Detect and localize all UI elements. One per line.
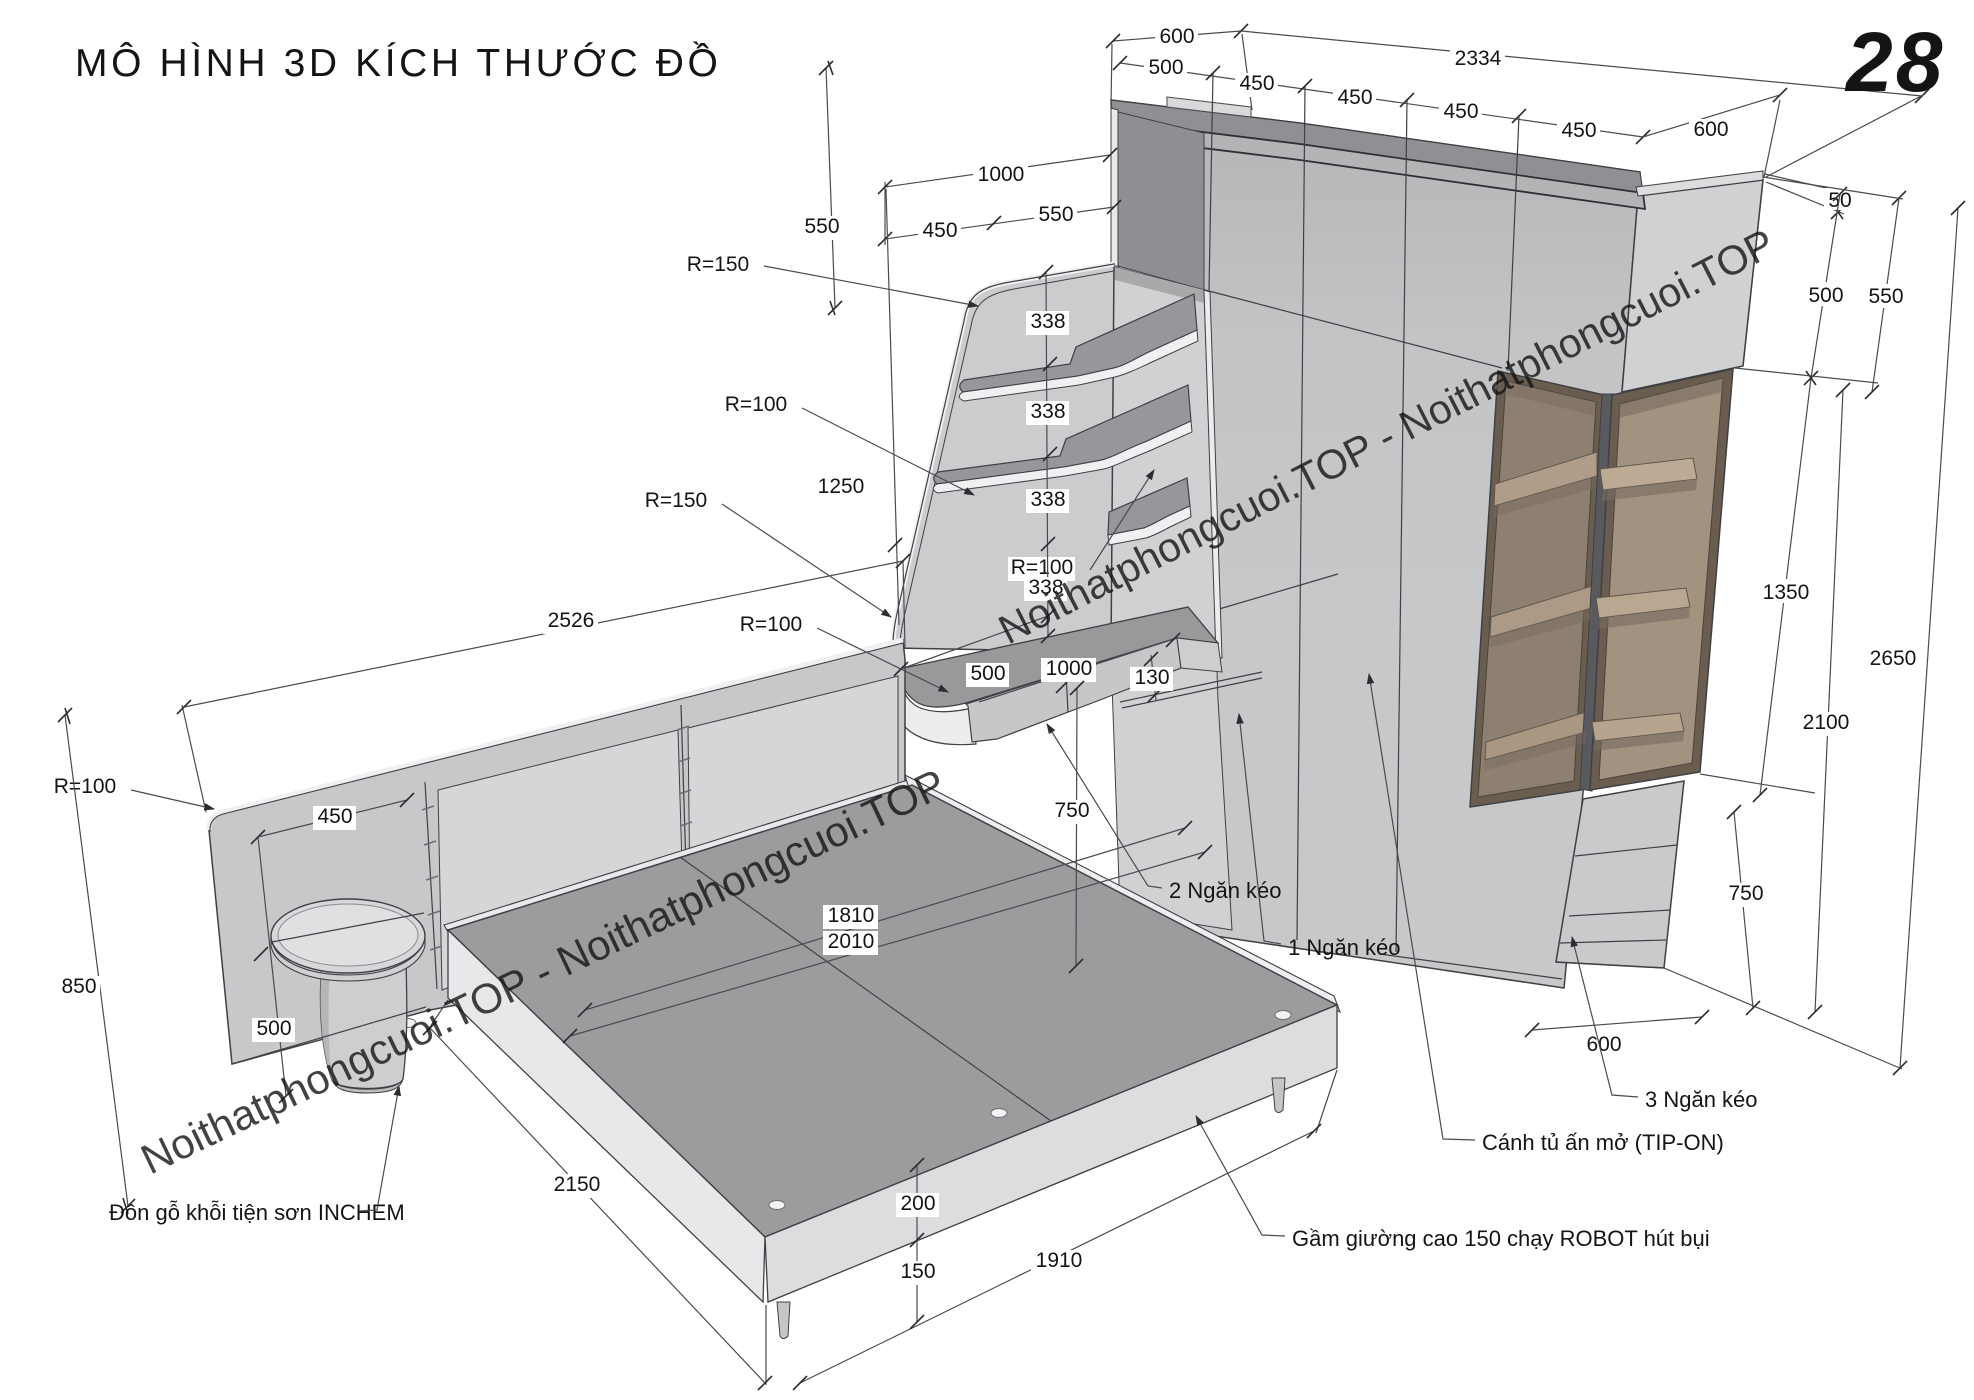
svg-text:550: 550 (804, 215, 839, 238)
svg-text:850: 850 (61, 975, 96, 998)
svg-text:1 Ngăn kéo: 1 Ngăn kéo (1288, 935, 1401, 960)
svg-text:1000: 1000 (1046, 657, 1093, 680)
svg-text:2150: 2150 (554, 1173, 601, 1196)
svg-text:1910: 1910 (1036, 1249, 1083, 1272)
svg-text:2010: 2010 (828, 930, 875, 953)
svg-text:750: 750 (1054, 799, 1089, 822)
svg-text:600: 600 (1159, 25, 1194, 48)
svg-text:550: 550 (1868, 285, 1903, 308)
svg-text:338: 338 (1030, 310, 1065, 333)
svg-text:500: 500 (1148, 56, 1183, 79)
svg-text:Gầm giường cao 150 chạy ROBOT: Gầm giường cao 150 chạy ROBOT hút bụi (1292, 1226, 1710, 1251)
svg-text:3 Ngăn kéo: 3 Ngăn kéo (1645, 1087, 1758, 1112)
svg-text:130: 130 (1134, 666, 1169, 689)
svg-text:500: 500 (256, 1017, 291, 1040)
svg-text:750: 750 (1728, 882, 1763, 905)
svg-text:50: 50 (1828, 189, 1851, 212)
svg-text:450: 450 (1443, 100, 1478, 123)
svg-text:500: 500 (1808, 284, 1843, 307)
svg-text:150: 150 (900, 1260, 935, 1283)
svg-text:500: 500 (970, 662, 1005, 685)
svg-text:1810: 1810 (828, 904, 875, 927)
svg-text:450: 450 (1561, 119, 1596, 142)
svg-text:2100: 2100 (1803, 711, 1850, 734)
svg-text:1350: 1350 (1763, 581, 1810, 604)
svg-text:R=100: R=100 (740, 613, 802, 636)
svg-text:1250: 1250 (818, 475, 865, 498)
svg-text:R=100: R=100 (725, 393, 787, 416)
svg-text:MÔ HÌNH 3D KÍCH THƯỚC ĐỒ: MÔ HÌNH 3D KÍCH THƯỚC ĐỒ (75, 41, 721, 85)
svg-text:2 Ngăn kéo: 2 Ngăn kéo (1169, 878, 1282, 903)
svg-text:2334: 2334 (1455, 47, 1502, 70)
svg-text:338: 338 (1030, 488, 1065, 511)
svg-text:450: 450 (1337, 86, 1372, 109)
svg-text:Đôn gỗ khỗi tiện sơn INCHEM: Đôn gỗ khỗi tiện sơn INCHEM (109, 1200, 405, 1225)
svg-text:2650: 2650 (1870, 647, 1917, 670)
svg-text:450: 450 (317, 805, 352, 828)
svg-text:600: 600 (1586, 1033, 1621, 1056)
svg-text:R=150: R=150 (687, 253, 749, 276)
svg-text:200: 200 (900, 1192, 935, 1215)
svg-text:600: 600 (1693, 118, 1728, 141)
svg-text:450: 450 (1239, 72, 1274, 95)
svg-text:28: 28 (1844, 15, 1945, 109)
svg-text:1000: 1000 (978, 163, 1025, 186)
svg-text:550: 550 (1038, 203, 1073, 226)
svg-text:2526: 2526 (548, 609, 595, 632)
svg-text:R=150: R=150 (645, 489, 707, 512)
svg-text:R=100: R=100 (54, 775, 116, 798)
svg-text:338: 338 (1030, 400, 1065, 423)
svg-text:450: 450 (922, 219, 957, 242)
svg-text:Cánh tủ ấn mở (TIP-ON): Cánh tủ ấn mở (TIP-ON) (1482, 1130, 1724, 1155)
